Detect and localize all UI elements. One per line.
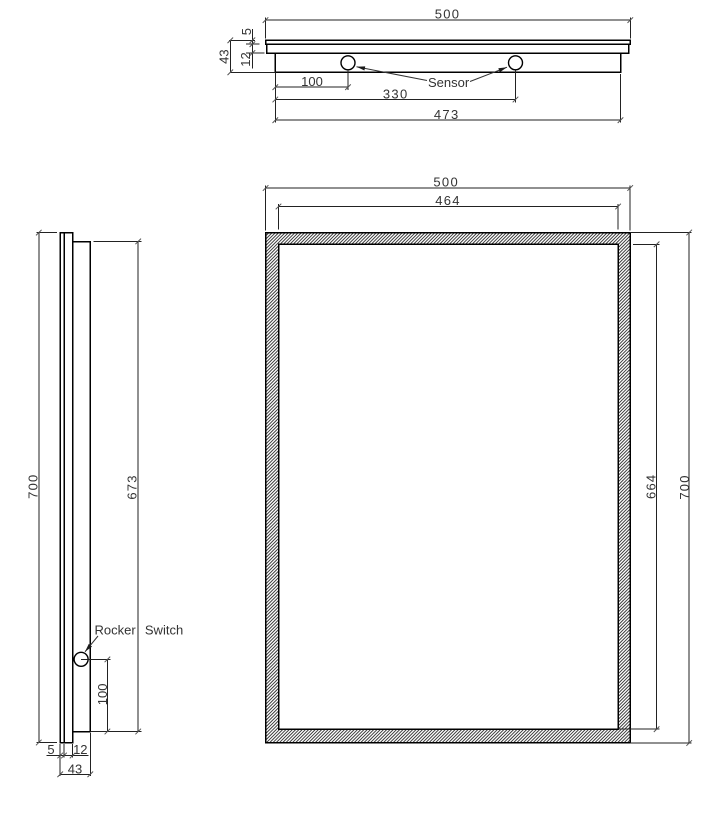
svg-text:464: 464 (435, 193, 461, 208)
svg-text:Switch: Switch (145, 622, 183, 637)
svg-text:100: 100 (301, 74, 323, 89)
svg-text:5: 5 (47, 742, 54, 757)
svg-text:500: 500 (433, 174, 459, 189)
svg-text:Rocker: Rocker (95, 622, 137, 637)
svg-text:673: 673 (125, 474, 140, 499)
svg-text:473: 473 (434, 107, 460, 122)
svg-text:700: 700 (26, 474, 41, 499)
svg-text:43: 43 (217, 49, 232, 63)
svg-text:5: 5 (239, 28, 254, 35)
svg-text:330: 330 (383, 86, 409, 101)
svg-text:12: 12 (73, 742, 87, 757)
svg-text:500: 500 (435, 7, 461, 22)
svg-text:43: 43 (68, 762, 82, 777)
svg-text:664: 664 (644, 474, 659, 499)
svg-text:Sensor: Sensor (428, 75, 470, 90)
svg-text:100: 100 (95, 684, 110, 706)
svg-text:700: 700 (677, 474, 692, 499)
